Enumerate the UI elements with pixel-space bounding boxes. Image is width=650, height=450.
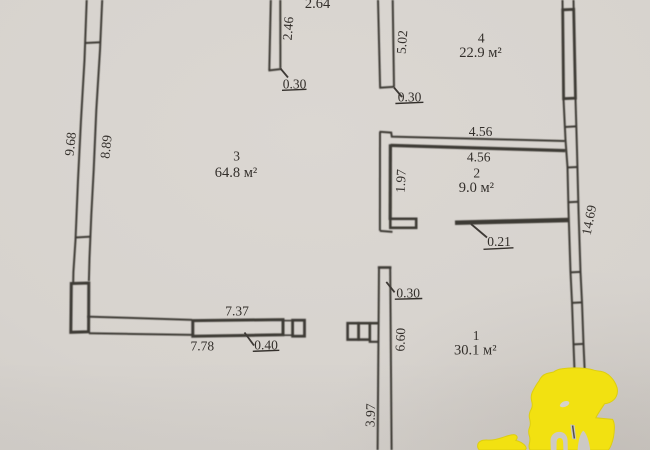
svg-text:22.9 м²: 22.9 м² xyxy=(459,45,502,61)
svg-text:1.97: 1.97 xyxy=(393,169,409,194)
svg-text:8.89: 8.89 xyxy=(97,134,114,159)
svg-text:5.02: 5.02 xyxy=(394,30,411,55)
svg-text:0.30: 0.30 xyxy=(396,286,420,301)
svg-text:7.37: 7.37 xyxy=(225,303,249,318)
svg-text:30.1 м²: 30.1 м² xyxy=(454,343,497,359)
svg-text:2: 2 xyxy=(473,165,480,180)
svg-text:7.78: 7.78 xyxy=(190,338,214,353)
svg-text:4: 4 xyxy=(478,30,485,45)
svg-text:1: 1 xyxy=(473,328,480,343)
svg-text:0.21: 0.21 xyxy=(487,234,511,249)
svg-text:0.30: 0.30 xyxy=(398,90,422,105)
svg-text:4.56: 4.56 xyxy=(469,124,493,139)
svg-text:9.68: 9.68 xyxy=(62,131,79,156)
svg-text:9.0 м²: 9.0 м² xyxy=(459,180,495,196)
svg-text:3: 3 xyxy=(233,149,240,164)
svg-text:4.56: 4.56 xyxy=(467,149,491,164)
svg-text:64.8 м²: 64.8 м² xyxy=(215,165,258,181)
svg-text:0.30: 0.30 xyxy=(283,77,307,92)
svg-text:3.97: 3.97 xyxy=(362,403,378,427)
svg-text:2.64: 2.64 xyxy=(305,0,331,12)
svg-text:0.40: 0.40 xyxy=(254,338,278,353)
svg-text:6.60: 6.60 xyxy=(392,327,408,351)
svg-text:2.46: 2.46 xyxy=(280,16,297,41)
